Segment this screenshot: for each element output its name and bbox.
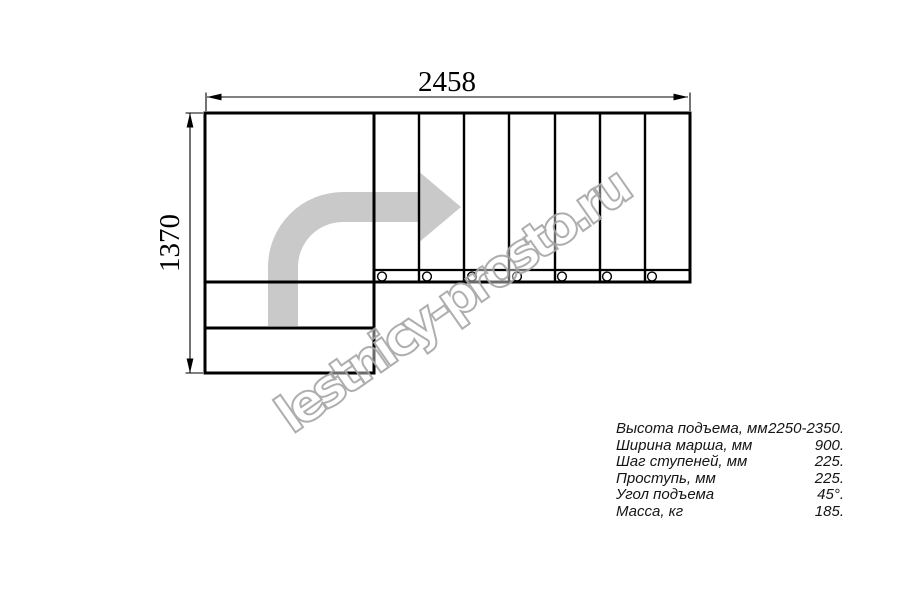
- width-dimension: 2458: [206, 66, 690, 111]
- spec-row: Высота подъема, мм 2250-2350.: [616, 421, 844, 438]
- width-dimension-arrow-right: [674, 94, 689, 101]
- height-dimension-label: 1370: [154, 214, 186, 272]
- direction-arrow-head: [420, 173, 461, 242]
- specs-table: Высота подъема, мм 2250-2350. Ширина мар…: [616, 421, 844, 521]
- spec-value: 225.: [815, 471, 844, 488]
- baluster-circle-6: [603, 272, 612, 281]
- spec-value: 45°.: [817, 487, 844, 504]
- height-dimension-arrow-bottom: [187, 359, 194, 374]
- direction-arrow-body: [283, 207, 420, 326]
- baluster-circle-4: [513, 272, 522, 281]
- spec-row: Угол подъема 45°.: [616, 487, 844, 504]
- baluster-circle-2: [423, 272, 432, 281]
- baluster-circle-3: [468, 272, 477, 281]
- spec-value: 225.: [815, 454, 844, 471]
- spec-row: Ширина марша, мм 900.: [616, 438, 844, 455]
- spec-row: Масса, кг 185.: [616, 504, 844, 521]
- spec-label: Высота подъема, мм: [616, 421, 768, 438]
- spec-label: Масса, кг: [616, 504, 683, 521]
- height-dimension-arrow-top: [187, 113, 194, 128]
- direction-arrow: [283, 173, 461, 327]
- spec-value: 185.: [815, 504, 844, 521]
- spec-label: Шаг ступеней, мм: [616, 454, 747, 471]
- staircase-drawing-page: 2458 1370 lestnicy-prosto.ru Высота подъ…: [0, 0, 900, 600]
- width-dimension-label: 2458: [418, 66, 476, 98]
- spec-label: Проступь, мм: [616, 471, 716, 488]
- width-dimension-arrow-left: [207, 94, 222, 101]
- spec-value: 900.: [815, 438, 844, 455]
- baluster-circle-5: [558, 272, 567, 281]
- spec-row: Шаг ступеней, мм 225.: [616, 454, 844, 471]
- baluster-circle-7: [648, 272, 657, 281]
- spec-row: Проступь, мм 225.: [616, 471, 844, 488]
- spec-value: 2250-2350.: [768, 421, 844, 438]
- baluster-circle-1: [378, 272, 387, 281]
- spec-label: Ширина марша, мм: [616, 438, 752, 455]
- spec-label: Угол подъема: [616, 487, 714, 504]
- height-dimension: 1370: [154, 113, 203, 373]
